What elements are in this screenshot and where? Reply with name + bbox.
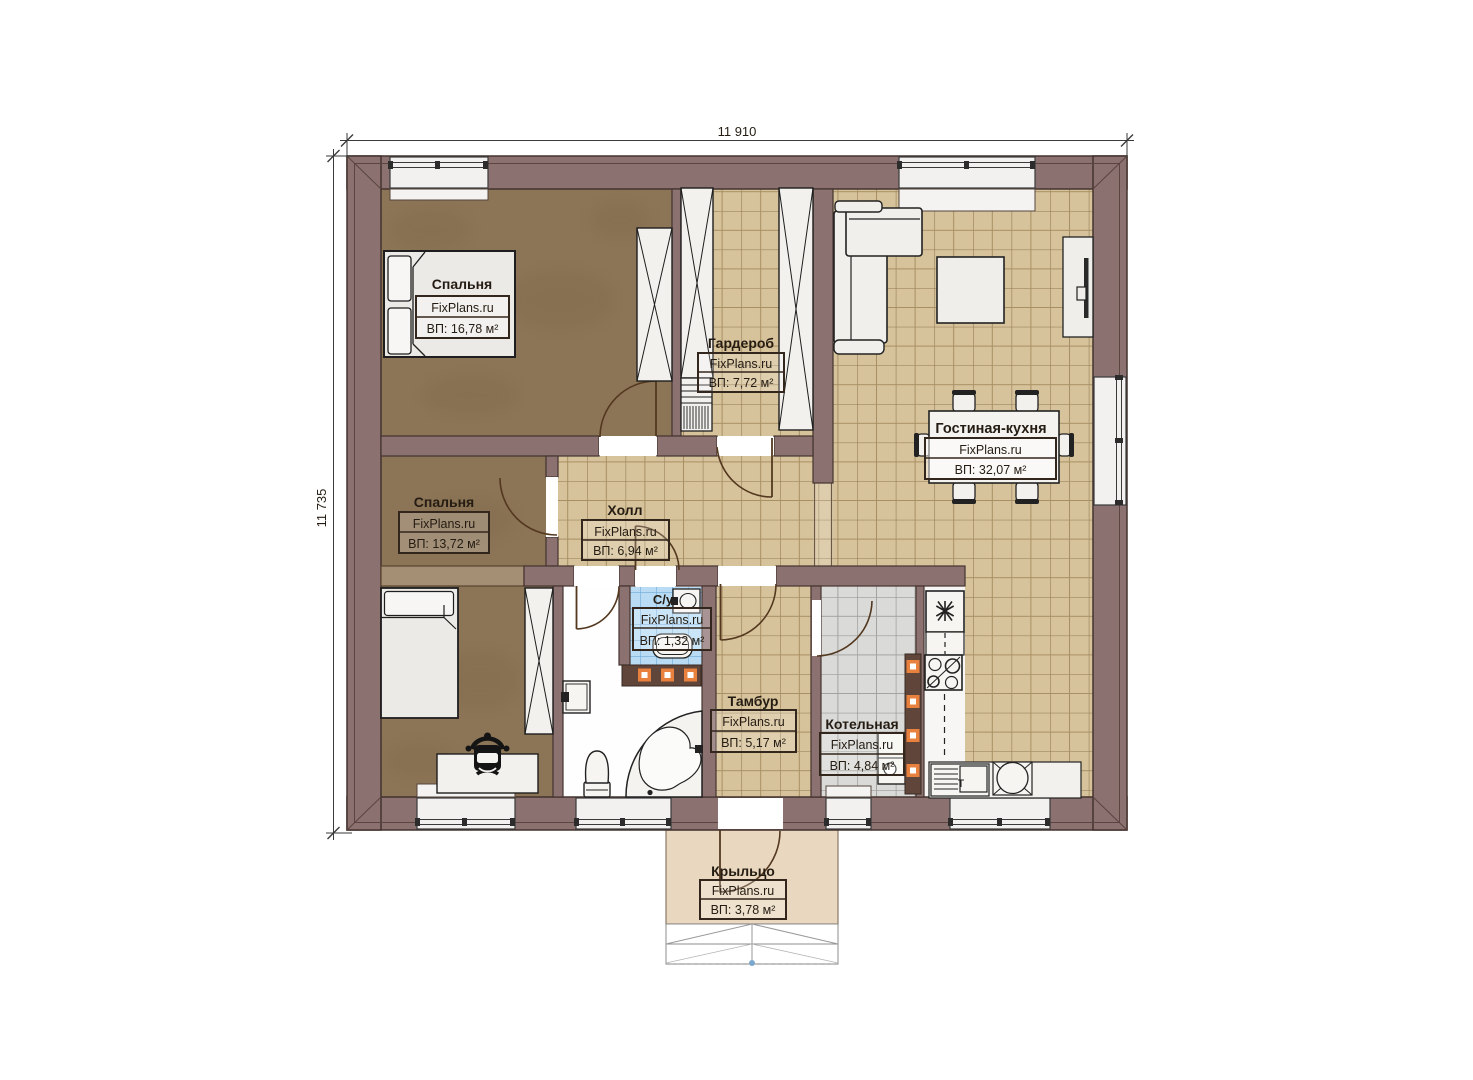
- svg-text:ВП: 5,17 м²: ВП: 5,17 м²: [721, 736, 786, 750]
- svg-text:FixPlans.ru: FixPlans.ru: [641, 613, 704, 627]
- svg-text:11 910: 11 910: [718, 124, 757, 139]
- svg-text:FixPlans.ru: FixPlans.ru: [431, 301, 494, 315]
- svg-text:Крыльцо: Крыльцо: [711, 863, 775, 879]
- svg-text:FixPlans.ru: FixPlans.ru: [722, 715, 785, 729]
- svg-text:FixPlans.ru: FixPlans.ru: [594, 525, 657, 539]
- svg-text:ВП: 6,94 м²: ВП: 6,94 м²: [593, 544, 658, 558]
- svg-text:ВП: 1,32 м²: ВП: 1,32 м²: [640, 634, 705, 648]
- svg-text:FixPlans.ru: FixPlans.ru: [712, 884, 775, 898]
- svg-text:Гостиная-кухня: Гостиная-кухня: [935, 421, 1046, 437]
- svg-text:FixPlans.ru: FixPlans.ru: [710, 357, 773, 371]
- svg-text:ВП: 32,07 м²: ВП: 32,07 м²: [955, 463, 1027, 477]
- svg-text:Спальня: Спальня: [414, 494, 474, 510]
- svg-text:ВП: 16,78 м²: ВП: 16,78 м²: [427, 322, 499, 336]
- svg-text:ВП: 4,84 м²: ВП: 4,84 м²: [830, 759, 895, 773]
- svg-text:Холл: Холл: [607, 502, 642, 518]
- svg-text:ВП: 13,72 м²: ВП: 13,72 м²: [408, 537, 480, 551]
- svg-text:ВП: 3,78 м²: ВП: 3,78 м²: [711, 903, 776, 917]
- svg-text:С/у: С/у: [653, 592, 674, 607]
- svg-text:FixPlans.ru: FixPlans.ru: [413, 517, 476, 531]
- svg-text:FixPlans.ru: FixPlans.ru: [959, 443, 1022, 457]
- svg-text:Гардероб: Гардероб: [708, 335, 775, 351]
- svg-text:Тамбур: Тамбур: [728, 693, 779, 709]
- svg-text:Спальня: Спальня: [432, 276, 492, 292]
- svg-text:11 735: 11 735: [314, 489, 329, 528]
- svg-text:ВП: 7,72 м²: ВП: 7,72 м²: [709, 376, 774, 390]
- svg-text:Котельная: Котельная: [825, 716, 898, 732]
- svg-text:FixPlans.ru: FixPlans.ru: [831, 738, 894, 752]
